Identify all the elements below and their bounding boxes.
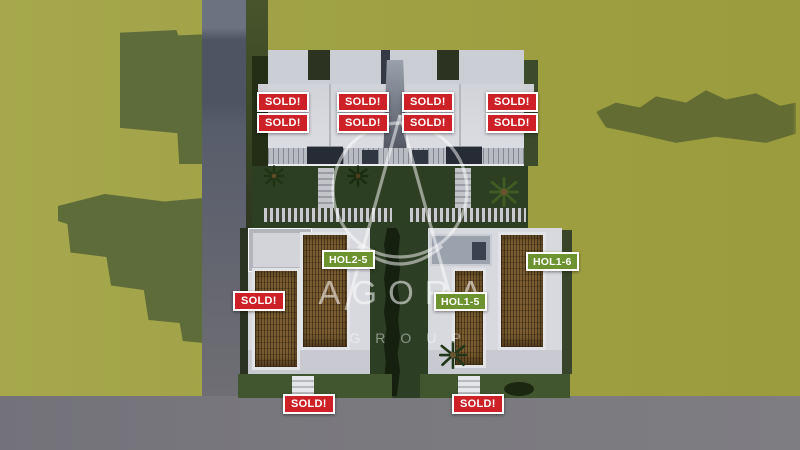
sold-badge: SOLD! — [337, 113, 389, 133]
sold-badge: SOLD! — [257, 113, 309, 133]
watermark-division-text: GROUP — [320, 330, 490, 346]
roof-seam — [329, 84, 331, 148]
bush — [504, 382, 534, 396]
road-horizontal — [0, 396, 800, 450]
sold-badge: SOLD! — [402, 113, 454, 133]
entry-steps — [458, 376, 480, 396]
palm-tree-icon — [488, 176, 520, 208]
skylight-hatch — [472, 242, 486, 260]
unit-badge-hol1-6: HOL1-6 — [526, 252, 579, 271]
palm-tree-icon — [262, 164, 286, 188]
roof-seam — [459, 84, 461, 148]
unit-badge-hol1-5: HOL1-5 — [434, 292, 487, 311]
garden-walkway — [318, 168, 334, 212]
sold-badge: SOLD! — [486, 92, 538, 112]
garden-walkway — [455, 168, 471, 212]
palm-tree-icon — [346, 164, 370, 188]
sold-badge: SOLD! — [452, 394, 504, 414]
entry-steps — [292, 376, 314, 396]
cypress-hedge — [384, 228, 400, 396]
slatted-fence — [264, 208, 392, 222]
sold-badge: SOLD! — [337, 92, 389, 112]
roof-notch — [308, 50, 330, 80]
sold-badge: SOLD! — [283, 394, 335, 414]
sold-badge: SOLD! — [402, 92, 454, 112]
unit-badge-hol2-5: HOL2-5 — [322, 250, 375, 269]
roof-notch — [437, 50, 459, 80]
slatted-fence — [410, 208, 526, 222]
development-aerial-render: AGORA GROUP SOLD! SOLD! SOLD! SOLD! SOLD… — [0, 0, 800, 450]
sold-badge: SOLD! — [233, 291, 285, 311]
sold-badge: SOLD! — [257, 92, 309, 112]
sold-badge: SOLD! — [486, 113, 538, 133]
